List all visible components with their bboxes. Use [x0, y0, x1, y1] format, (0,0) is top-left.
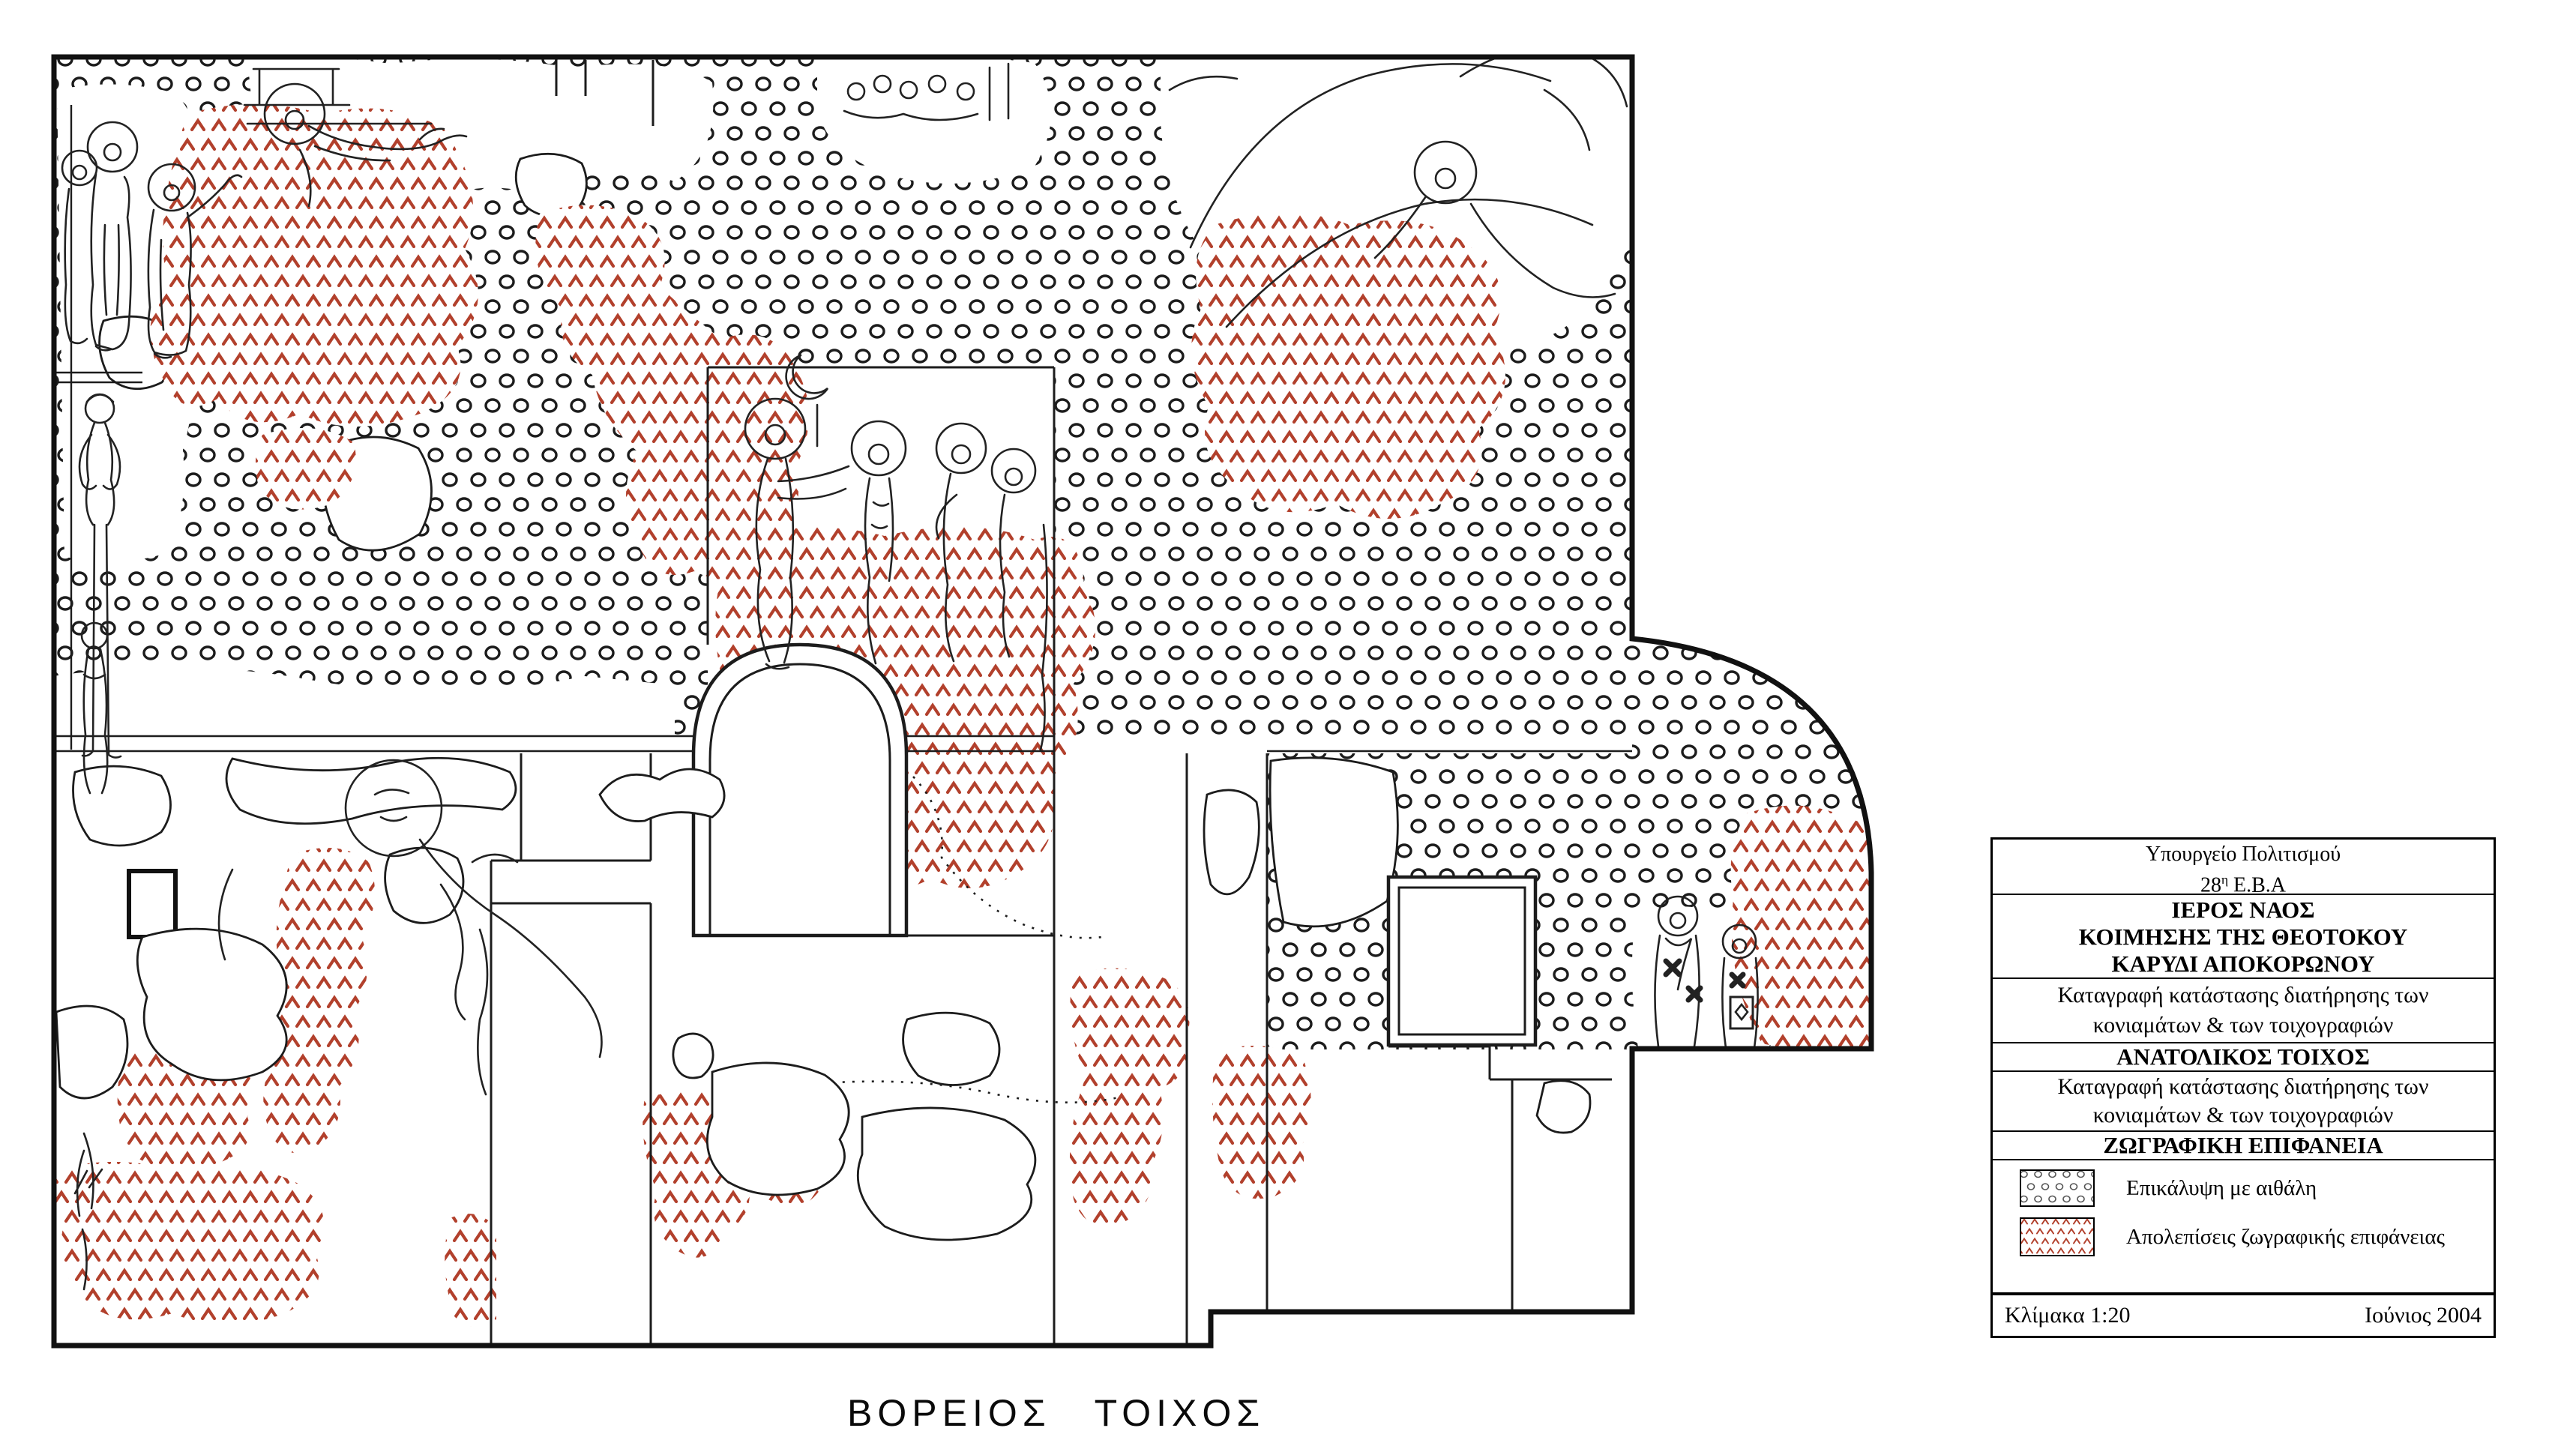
date-label: Ιούνιος 2004 [2365, 1303, 2482, 1328]
square-niche [1388, 877, 1535, 1045]
arched-niche [693, 645, 906, 936]
soot-circles-swatch [2020, 1169, 2095, 1207]
title-block: Υπουργείο Πολιτισμού 28η Ε.Β.Α ΙΕΡΟΣ ΝΑΟ… [1990, 837, 2496, 1338]
wall-heading: ΑΝΑΤΟΛΙΚΟΣ ΤΟΙΧΟΣ [1993, 1043, 2494, 1070]
drawing-caption: ΒΟΡΕΙΟΣ ΤΟΙΧΟΣ [847, 1391, 1265, 1435]
survey-description-row-1: Καταγραφή κατάστασης διατήρησης των κονι… [1993, 979, 2494, 1043]
ministry-row: Υπουργείο Πολιτισμού 28η Ε.Β.Α [1993, 840, 2494, 895]
conservation-drawing-sheet: Υπουργείο Πολιτισμού 28η Ε.Β.Α ΙΕΡΟΣ ΝΑΟ… [0, 0, 2576, 1449]
surface-heading: ΖΩΓΡΑΦΙΚΗ ΕΠΙΦΑΝΕΙΑ [1993, 1132, 2494, 1159]
legend-label-flaking: Απολεπίσεις ζωγραφικής επιφάνειας [2126, 1225, 2445, 1250]
legend: Επικάλυψη με αιθάλη [1993, 1160, 2494, 1294]
legend-label-soot: Επικάλυψη με αιθάλη [2126, 1176, 2317, 1201]
church-line-2: ΚΟΙΜΗΣΗΣ ΤΗΣ ΘΕΟΤΟΚΟΥ [1993, 924, 2494, 951]
church-title-row: ΙΕΡΟΣ ΝΑΟΣ ΚΟΙΜΗΣΗΣ ΤΗΣ ΘΕΟΤΟΚΟΥ ΚΑΡΥΔΙ … [1993, 895, 2494, 979]
church-line-1: ΙΕΡΟΣ ΝΑΟΣ [1993, 897, 2494, 924]
scale-label: Κλίμακα 1:20 [2005, 1303, 2131, 1328]
ministry-line: Υπουργείο Πολιτισμού [1993, 842, 2494, 867]
survey-description-row-2: Καταγραφή κατάστασης διατήρησης των κονι… [1993, 1072, 2494, 1132]
legend-item-soot: Επικάλυψη με αιθάλη [2020, 1169, 2494, 1207]
wall-heading-row: ΑΝΑΤΟΛΙΚΟΣ ΤΟΙΧΟΣ [1993, 1043, 2494, 1072]
ephorate-line: 28η Ε.Β.Α [1993, 867, 2494, 898]
legend-item-flaking: Απολεπίσεις ζωγραφικής επιφάνειας [2020, 1217, 2494, 1256]
surface-heading-row: ΖΩΓΡΑΦΙΚΗ ΕΠΙΦΑΝΕΙΑ [1993, 1132, 2494, 1160]
small-niche [129, 871, 175, 937]
scale-date-row: Κλίμακα 1:20 Ιούνιος 2004 [1993, 1294, 2494, 1336]
church-line-3: ΚΑΡΥΔΙ ΑΠΟΚΟΡΩΝΟΥ [1993, 951, 2494, 977]
flaking-chevrons-swatch [2020, 1217, 2095, 1256]
